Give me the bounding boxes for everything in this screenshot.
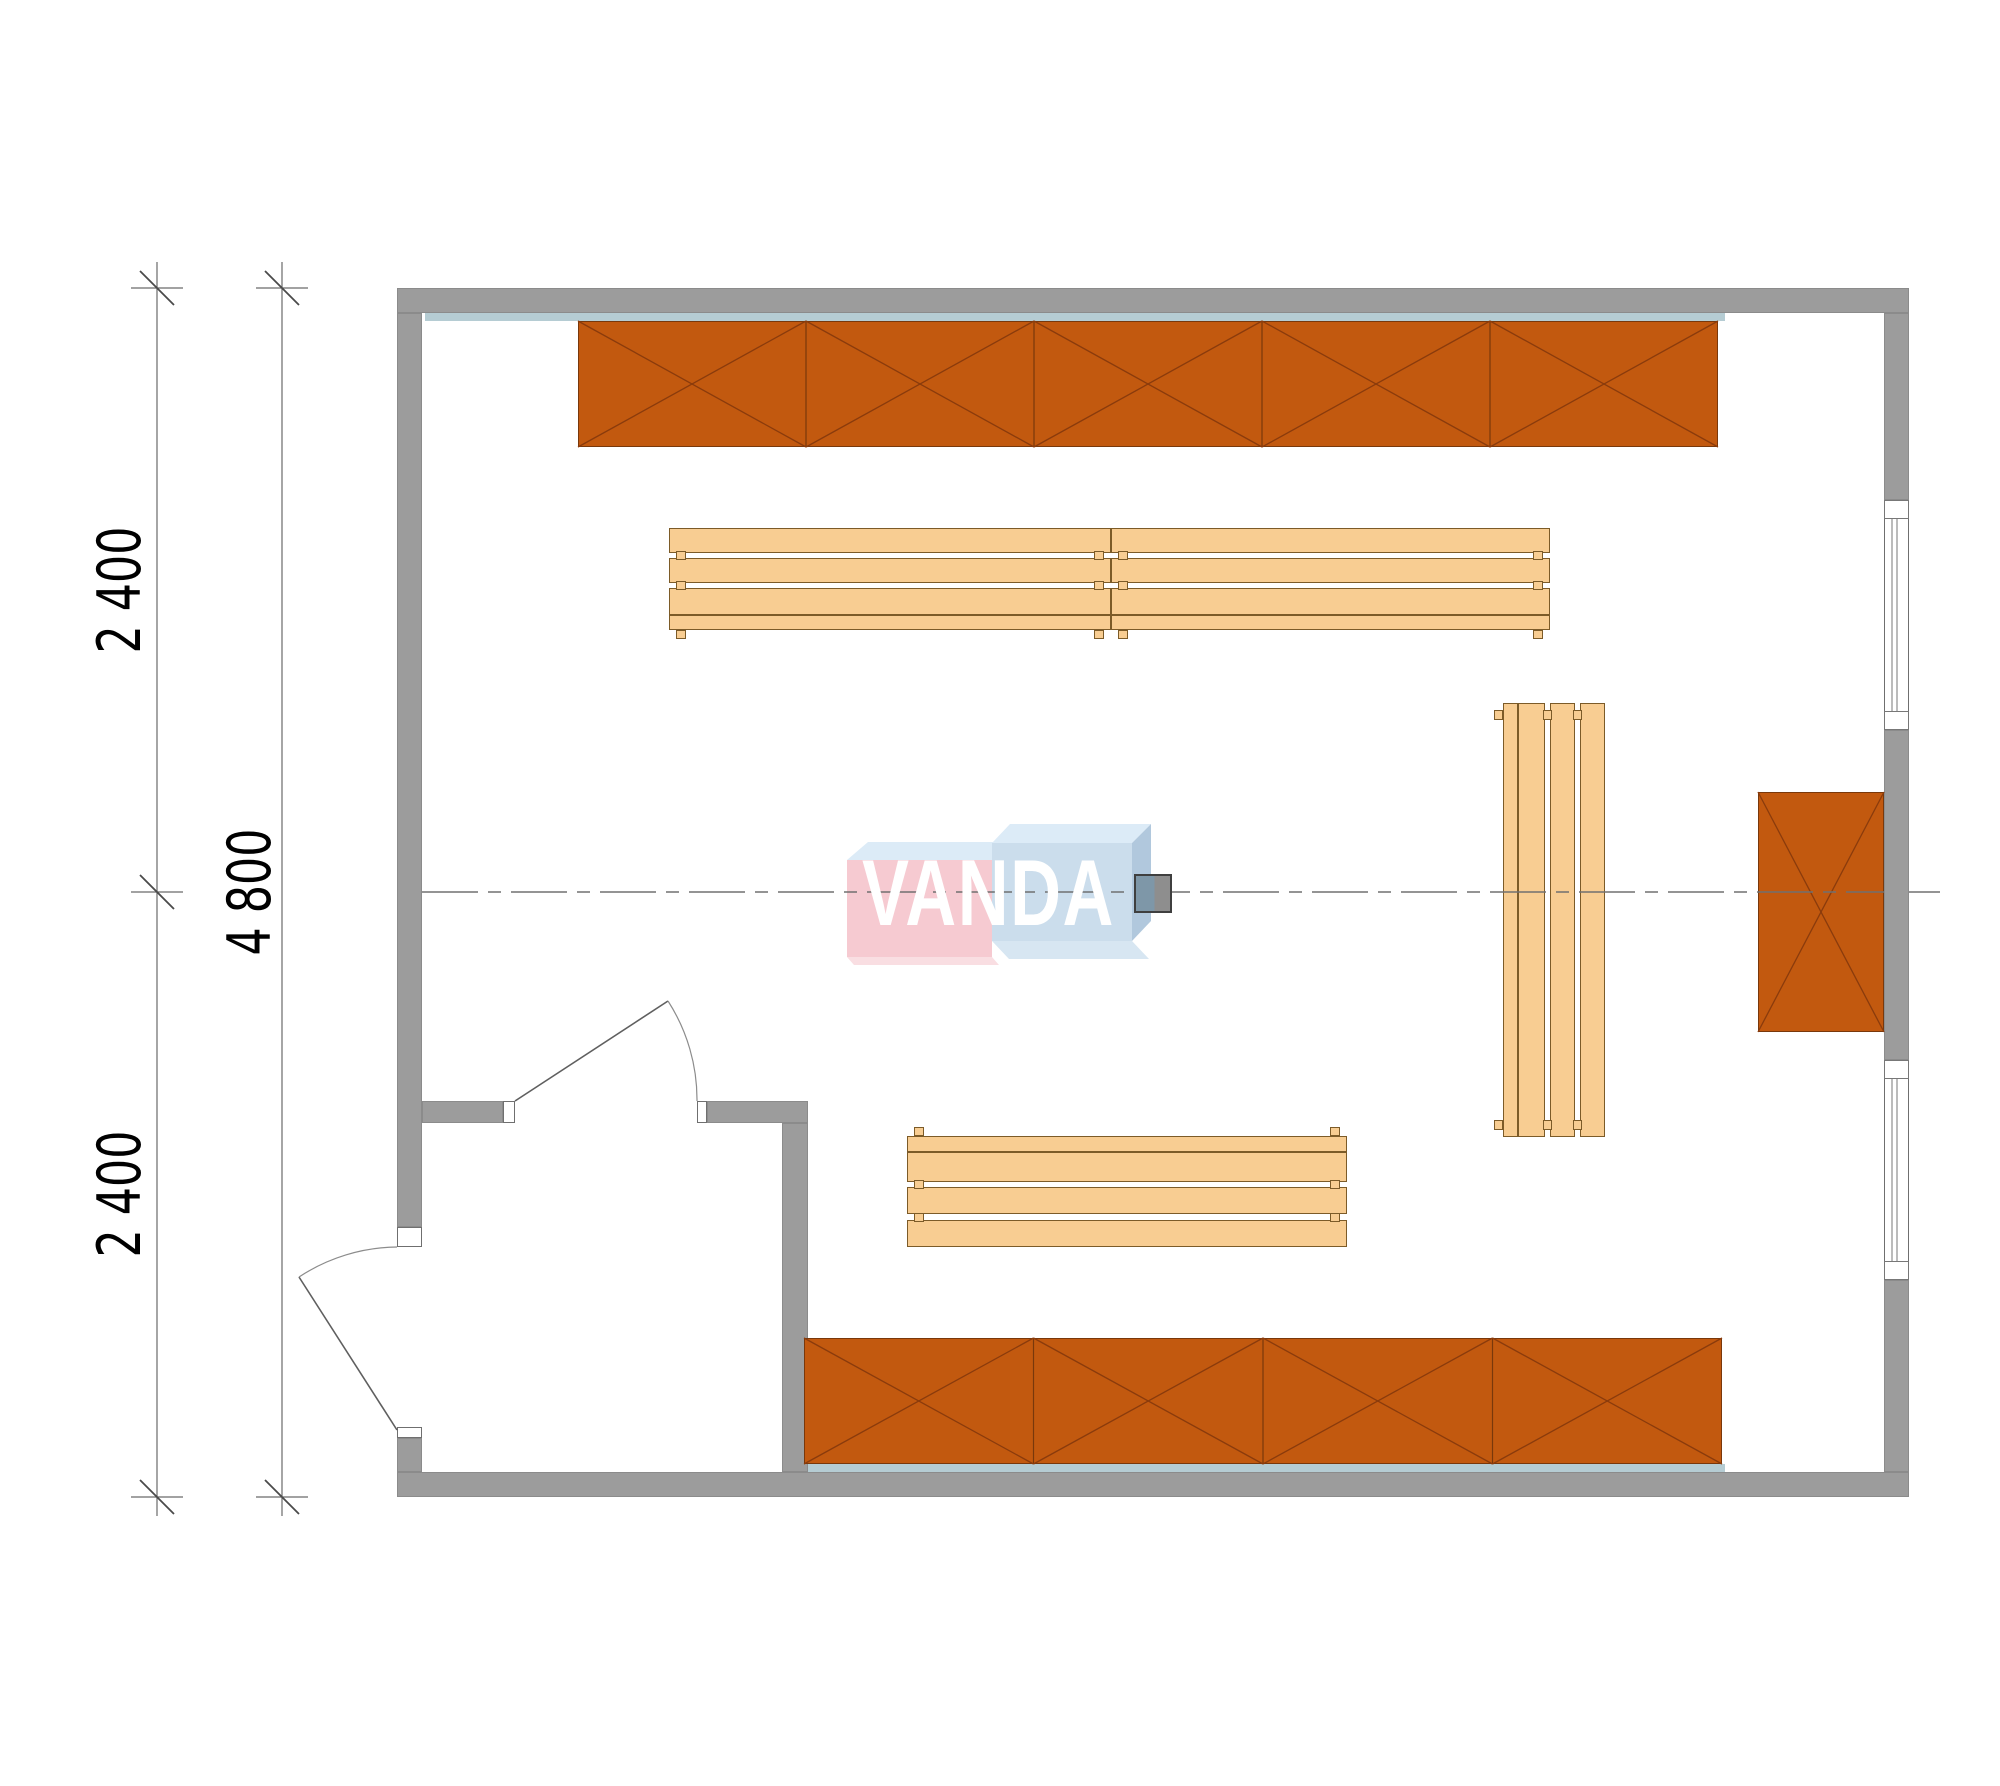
- vanda-logo-text: VANDA: [862, 846, 1115, 940]
- interior-door-leaf: [515, 1001, 668, 1101]
- heater-stove: [1134, 874, 1172, 913]
- floor-plan-canvas: 2 400 4 800 2 400 VANDA: [0, 0, 2000, 1786]
- exterior-door-leaf: [299, 1277, 397, 1430]
- dimension-label-lower-2400: 2 400: [90, 1130, 150, 1257]
- dimension-label-overall-4800: 4 800: [220, 828, 280, 955]
- interior-door-swing-arc: [668, 1001, 697, 1101]
- exterior-door-swing-arc: [299, 1247, 397, 1277]
- dimension-label-upper-2400: 2 400: [90, 526, 150, 653]
